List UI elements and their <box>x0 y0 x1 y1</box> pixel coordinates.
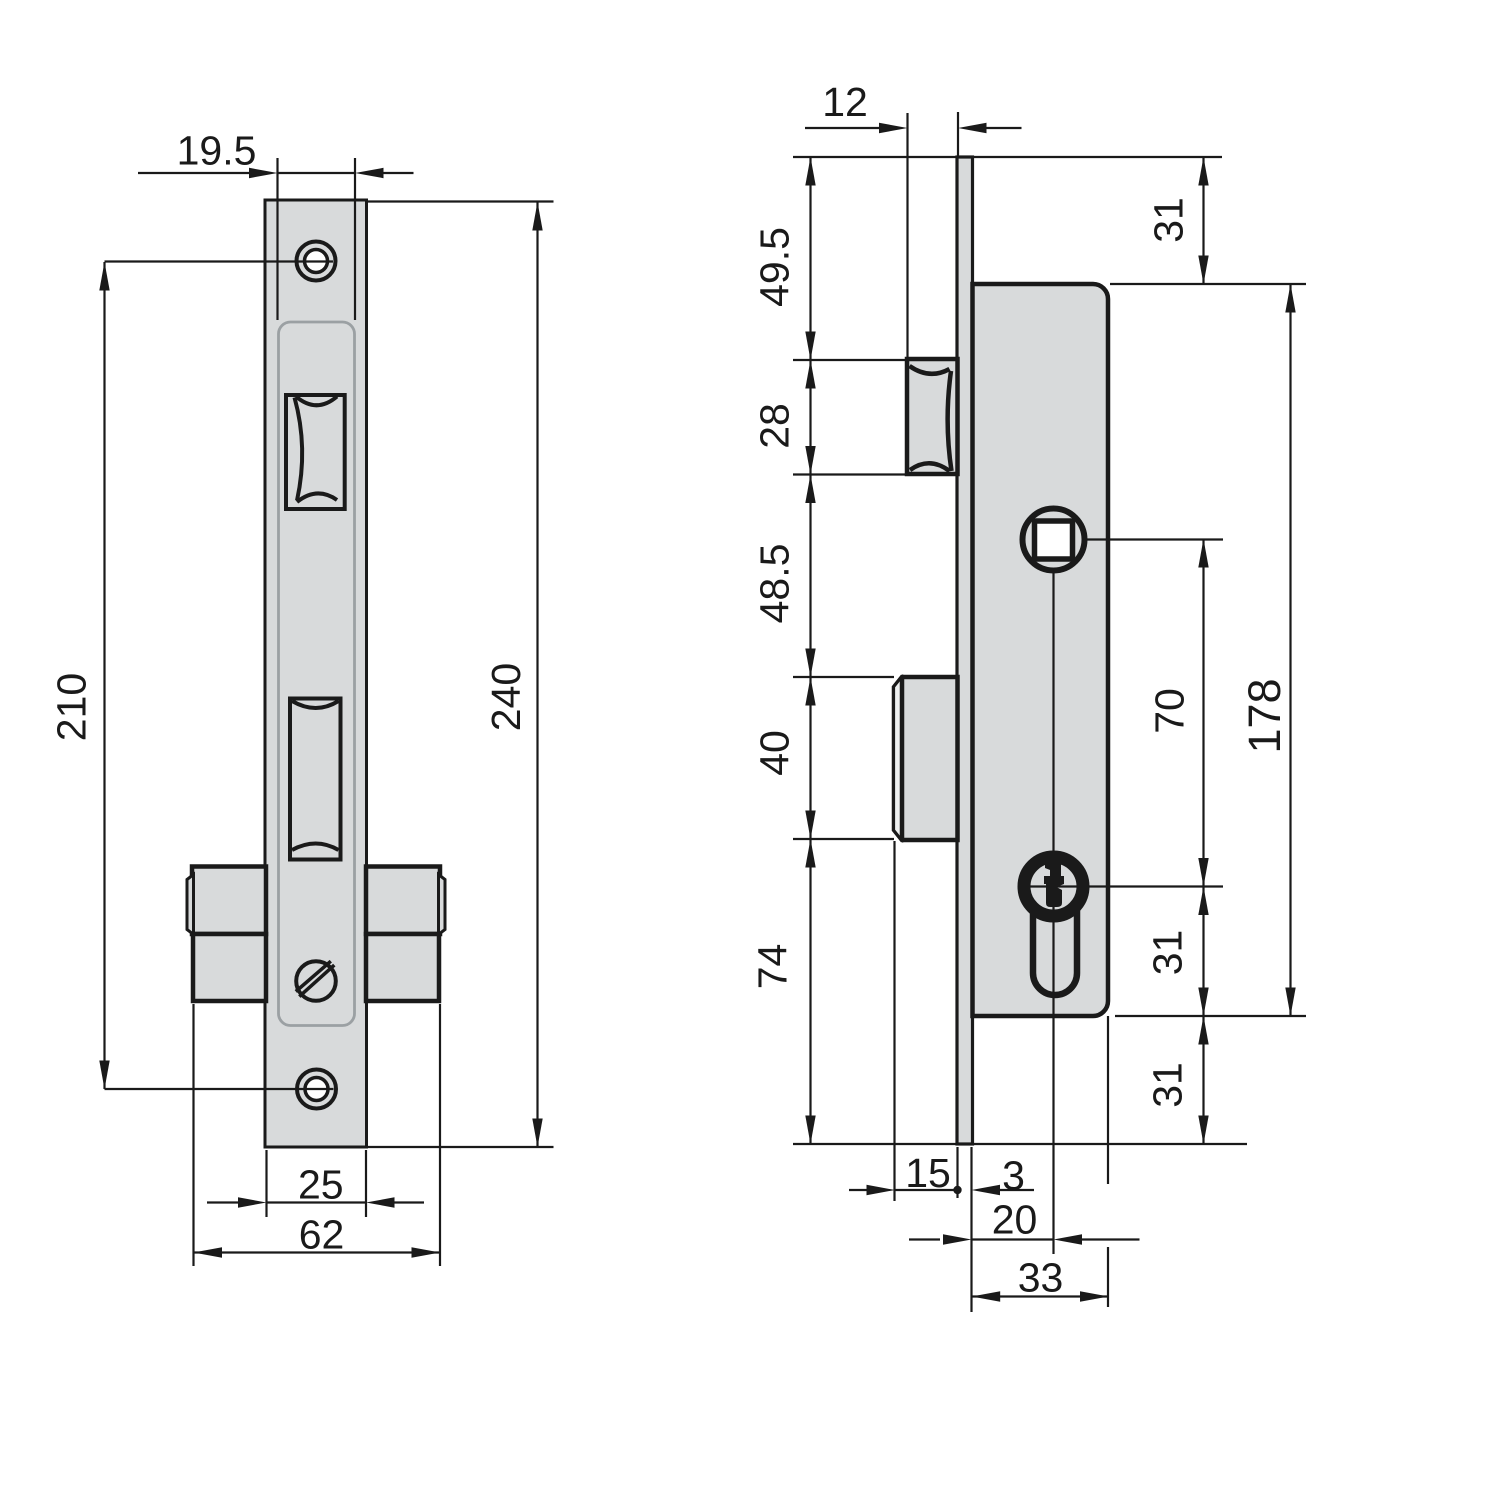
svg-text:40: 40 <box>752 730 798 776</box>
svg-text:62: 62 <box>299 1212 345 1258</box>
svg-text:31: 31 <box>1145 930 1191 976</box>
svg-text:31: 31 <box>1145 1062 1191 1108</box>
svg-text:12: 12 <box>822 79 868 125</box>
svg-text:25: 25 <box>298 1162 344 1208</box>
svg-text:3: 3 <box>1002 1153 1025 1199</box>
svg-text:15: 15 <box>905 1150 951 1196</box>
svg-text:210: 210 <box>49 673 95 741</box>
svg-text:178: 178 <box>1239 678 1290 753</box>
svg-text:49.5: 49.5 <box>752 227 798 307</box>
svg-text:240: 240 <box>483 663 529 731</box>
svg-text:28: 28 <box>752 403 798 449</box>
svg-text:33: 33 <box>1018 1255 1064 1301</box>
svg-text:31: 31 <box>1146 197 1192 243</box>
svg-text:48.5: 48.5 <box>752 544 798 624</box>
svg-text:20: 20 <box>992 1197 1038 1243</box>
svg-text:74: 74 <box>750 944 796 990</box>
svg-text:70: 70 <box>1147 688 1193 734</box>
svg-text:19.5: 19.5 <box>177 128 257 174</box>
